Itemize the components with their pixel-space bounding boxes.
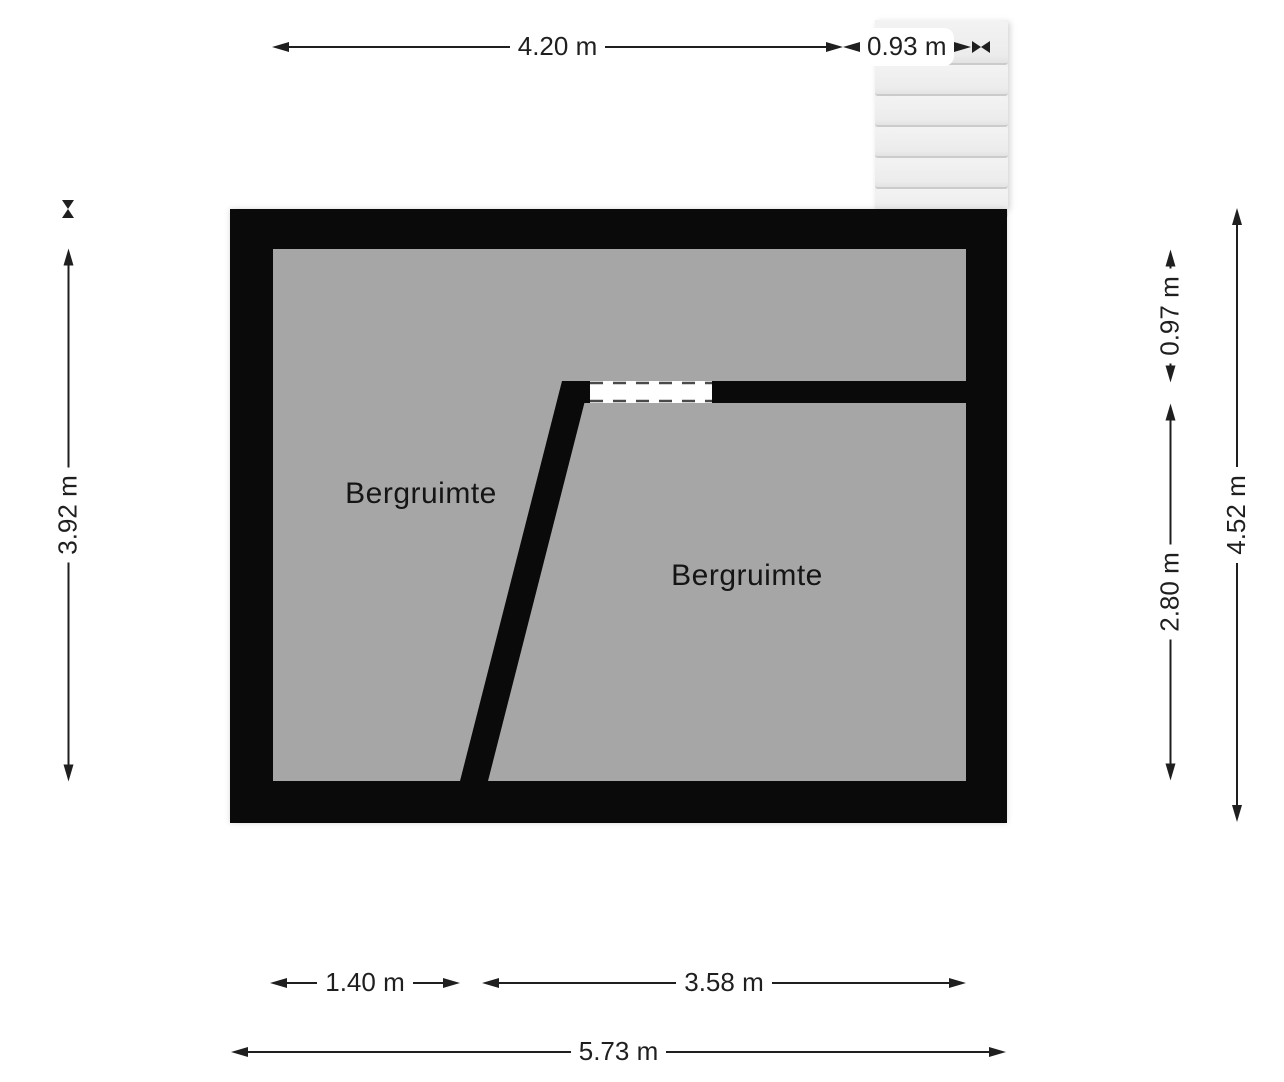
- stair-step: [875, 65, 1008, 96]
- dim-line: [499, 982, 676, 984]
- dim-right-upper: 0.97 m: [1157, 249, 1183, 382]
- dim-top-stairs: 0.93 m: [843, 34, 970, 60]
- dim-label: 4.20 m: [510, 33, 606, 60]
- arrow-right-icon: [954, 42, 971, 52]
- dim-label: 3.92 m: [54, 467, 81, 563]
- arrow-down-icon: [1232, 805, 1242, 822]
- dim-label: 0.93 m: [860, 28, 954, 65]
- dim-line: [666, 1051, 989, 1053]
- arrow-up-icon: [1165, 249, 1175, 266]
- collapsed-dimension-icon: [62, 200, 74, 218]
- dim-line: [287, 982, 317, 984]
- dim-label: 0.97 m: [1156, 268, 1183, 364]
- arrow-left-icon: [843, 42, 860, 52]
- arrow-down-icon: [1165, 365, 1175, 382]
- dim-right-lower: 2.80 m: [1157, 403, 1183, 780]
- arrow-left-icon: [482, 978, 499, 988]
- dim-bottom-total: 5.73 m: [231, 1039, 1006, 1065]
- dim-line: [67, 562, 69, 764]
- bowtie-top-icon: [62, 200, 74, 209]
- arrow-right-icon: [949, 978, 966, 988]
- window-opening: [590, 381, 712, 403]
- arrow-up-icon: [1232, 208, 1242, 225]
- stair-step: [875, 96, 1008, 127]
- dim-label: 2.80 m: [1156, 544, 1183, 640]
- arrow-down-icon: [63, 764, 73, 781]
- bowtie-left-icon: [972, 41, 981, 53]
- dim-right-total: 4.52 m: [1224, 208, 1250, 822]
- room-label-left: Bergruimte: [345, 477, 497, 511]
- dim-line: [772, 982, 949, 984]
- dim-line: [248, 1051, 571, 1053]
- floor-area: [273, 249, 966, 781]
- dim-line: [1169, 639, 1171, 763]
- arrow-right-icon: [826, 42, 843, 52]
- stair-step: [875, 127, 1008, 158]
- dim-label: 1.40 m: [317, 969, 413, 996]
- arrow-left-icon: [231, 1047, 248, 1057]
- dim-line: [605, 46, 826, 48]
- arrow-up-icon: [63, 248, 73, 265]
- dim-line: [1236, 563, 1238, 805]
- arrow-up-icon: [1165, 403, 1175, 420]
- collapsed-dimension-icon: [972, 41, 990, 53]
- dim-line: [1236, 225, 1238, 467]
- arrow-left-icon: [270, 978, 287, 988]
- room-label-right: Bergruimte: [671, 559, 823, 593]
- stair-step: [875, 158, 1008, 189]
- arrow-right-icon: [443, 978, 460, 988]
- dim-bottom-right: 3.58 m: [482, 970, 966, 996]
- dim-bottom-left: 1.40 m: [270, 970, 460, 996]
- dim-left-inner-height: 3.92 m: [55, 248, 81, 781]
- dim-line: [289, 46, 510, 48]
- bowtie-bottom-icon: [62, 209, 74, 218]
- dim-line: [1169, 420, 1171, 544]
- dim-label: 5.73 m: [571, 1038, 667, 1065]
- floor-plan-svg: [230, 209, 1007, 823]
- bowtie-right-icon: [981, 41, 990, 53]
- arrow-right-icon: [989, 1047, 1006, 1057]
- dim-line: [413, 982, 443, 984]
- dim-top-main: 4.20 m: [272, 34, 843, 60]
- dim-line: [67, 265, 69, 467]
- floorplan-canvas: Bergruimte Bergruimte 4.20 m 0.93 m 3.92…: [0, 0, 1284, 1082]
- arrow-down-icon: [1165, 763, 1175, 780]
- dim-label: 4.52 m: [1223, 467, 1250, 563]
- dim-label: 3.58 m: [676, 969, 772, 996]
- arrow-left-icon: [272, 42, 289, 52]
